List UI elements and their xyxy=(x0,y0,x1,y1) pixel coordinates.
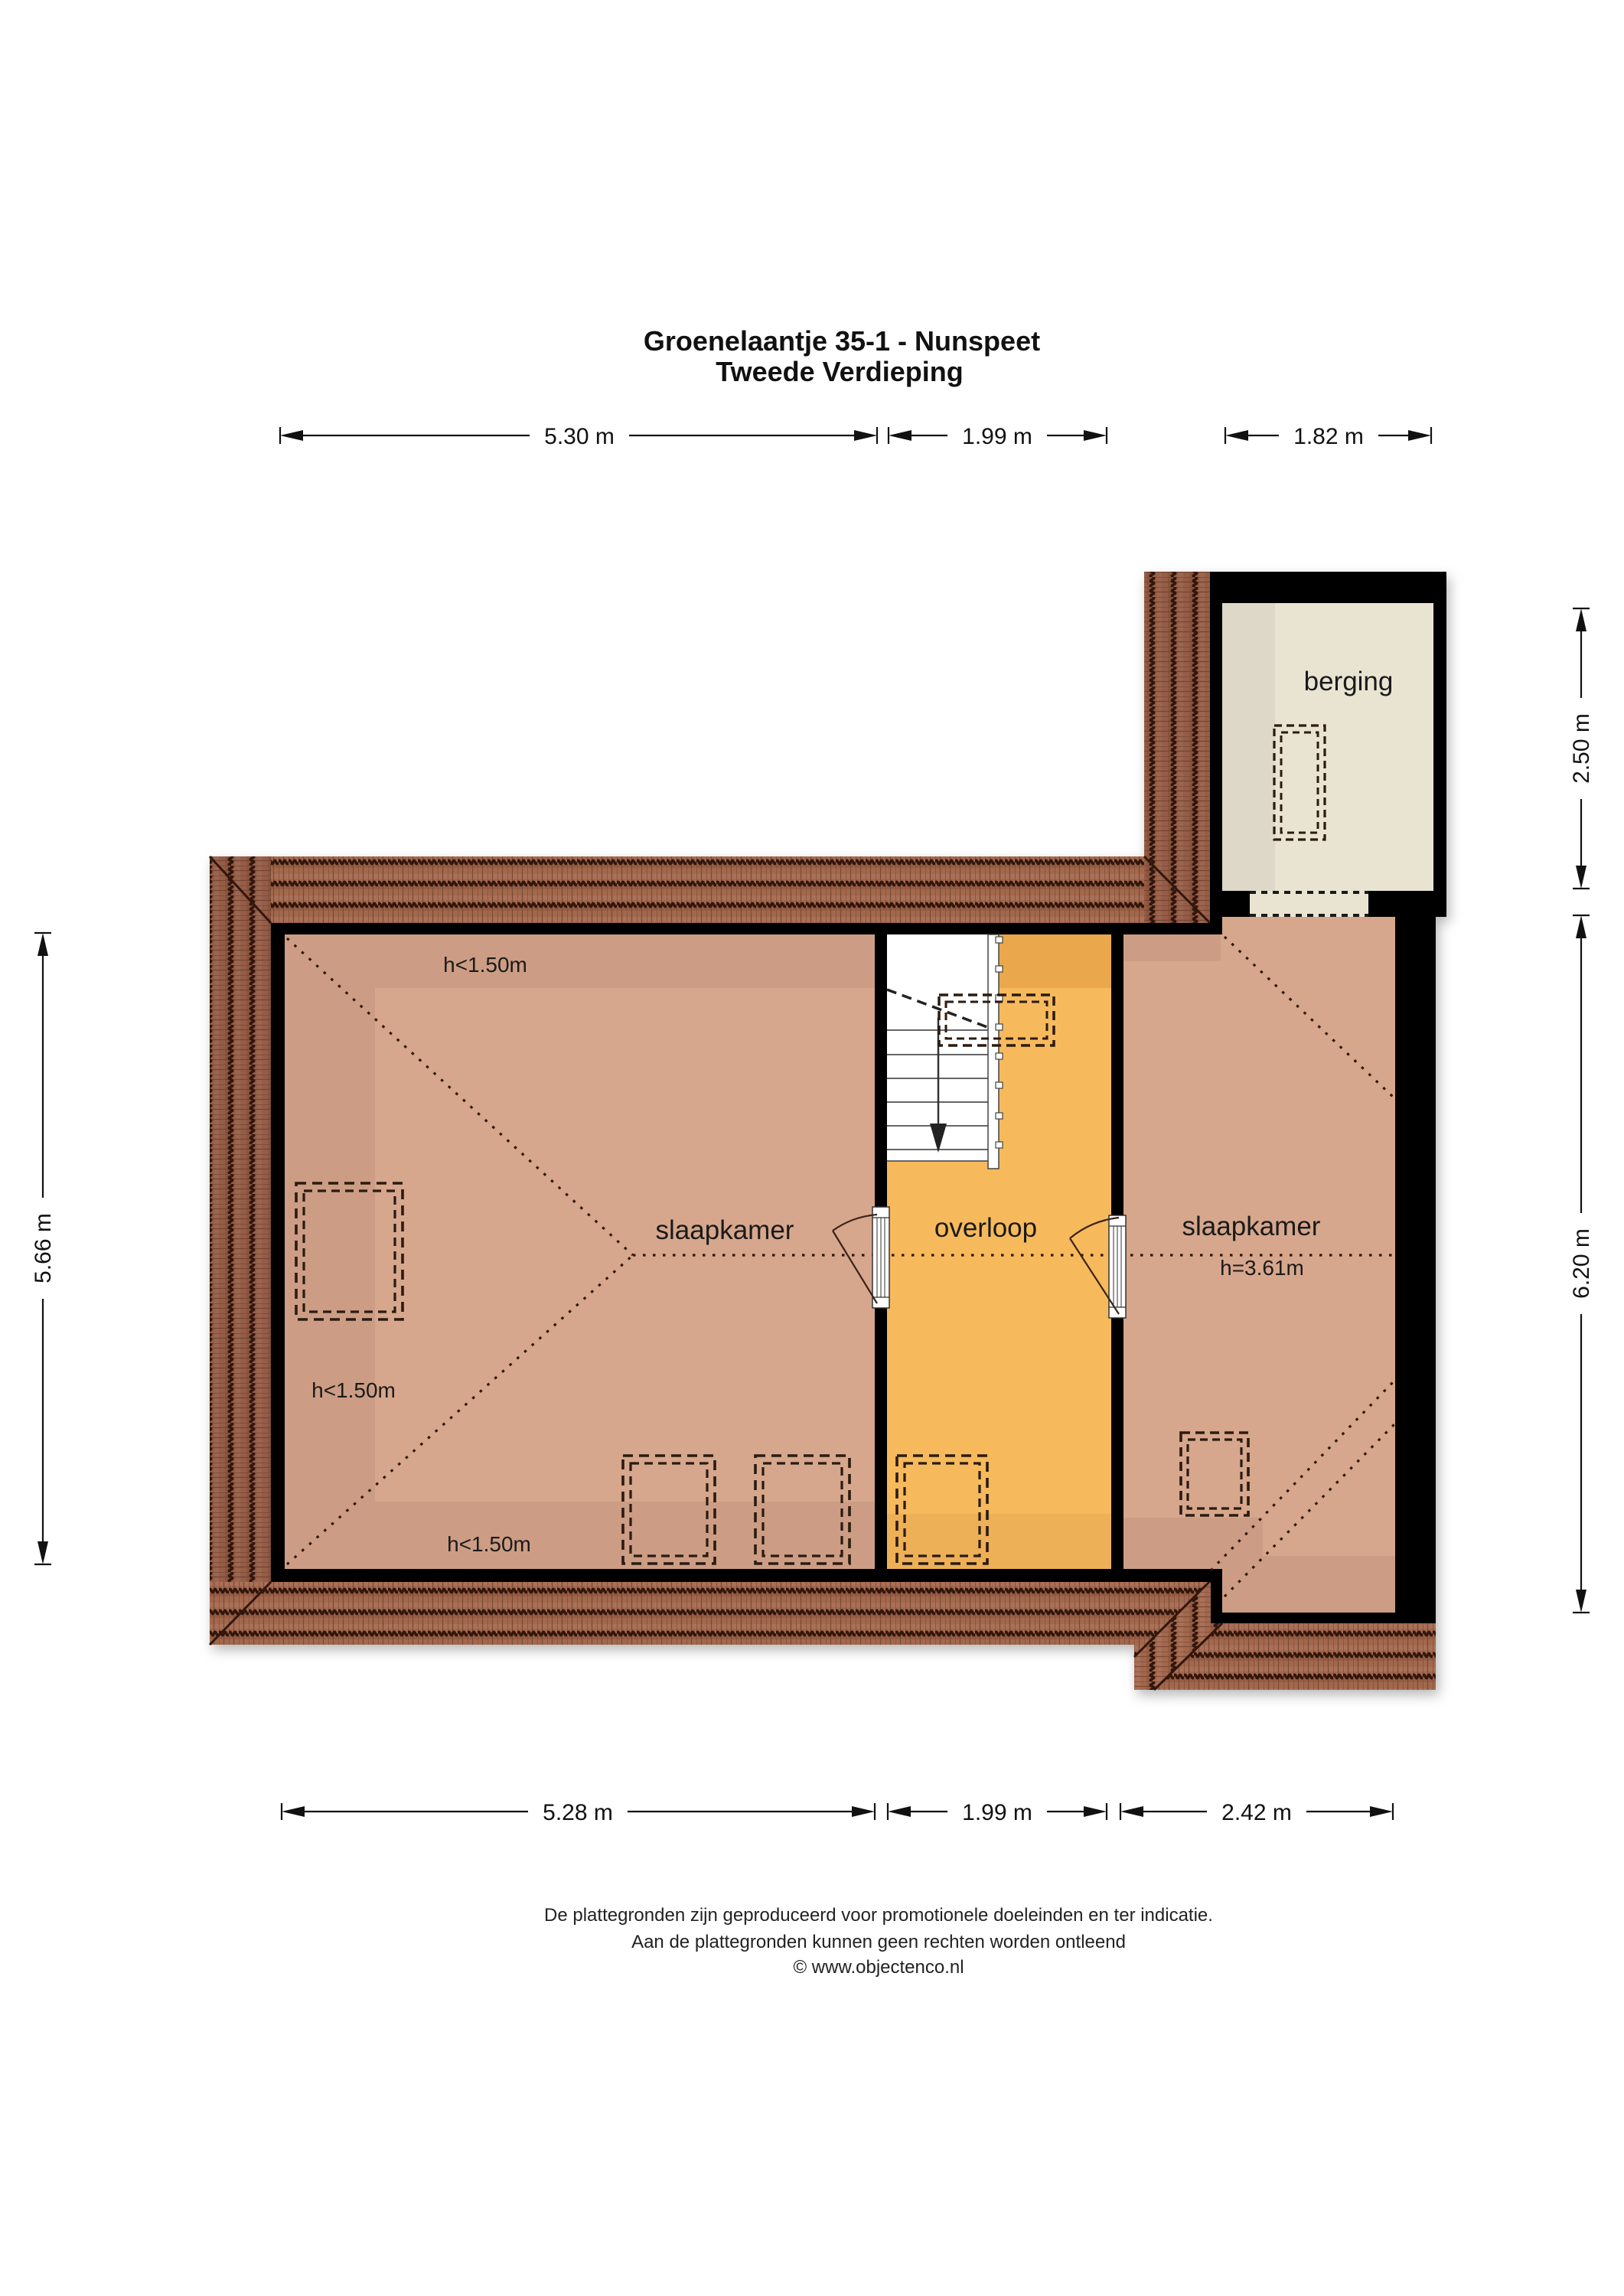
svg-text:5.28 m: 5.28 m xyxy=(543,1800,613,1825)
svg-text:Tweede Verdieping: Tweede Verdieping xyxy=(716,356,963,387)
svg-text:5.66 m: 5.66 m xyxy=(31,1213,56,1283)
svg-text:5.30 m: 5.30 m xyxy=(544,424,615,449)
svg-text:Groenelaantje 35-1 - Nunspeet: Groenelaantje 35-1 - Nunspeet xyxy=(644,325,1040,357)
svg-text:2.42 m: 2.42 m xyxy=(1221,1800,1292,1825)
svg-text:De plattegronden zijn geproduc: De plattegronden zijn geproduceerd voor … xyxy=(544,1905,1213,1926)
svg-text:berging: berging xyxy=(1304,667,1394,696)
svg-text:slaapkamer: slaapkamer xyxy=(656,1215,794,1245)
svg-text:1.99 m: 1.99 m xyxy=(962,424,1032,449)
svg-text:© www.objectenco.nl: © www.objectenco.nl xyxy=(793,1957,964,1978)
svg-text:1.82 m: 1.82 m xyxy=(1293,424,1364,449)
svg-text:h<1.50m: h<1.50m xyxy=(311,1378,396,1402)
svg-text:6.20 m: 6.20 m xyxy=(1569,1228,1594,1299)
svg-text:Aan de plattegronden kunnen ge: Aan de plattegronden kunnen geen rechten… xyxy=(631,1932,1126,1952)
svg-text:1.99 m: 1.99 m xyxy=(962,1800,1032,1825)
svg-text:h<1.50m: h<1.50m xyxy=(443,953,527,977)
svg-text:slaapkamer: slaapkamer xyxy=(1182,1212,1321,1241)
svg-text:h=3.61m: h=3.61m xyxy=(1220,1256,1304,1280)
svg-text:overloop: overloop xyxy=(934,1213,1037,1243)
svg-text:h<1.50m: h<1.50m xyxy=(447,1532,531,1556)
svg-text:2.50 m: 2.50 m xyxy=(1569,713,1594,784)
